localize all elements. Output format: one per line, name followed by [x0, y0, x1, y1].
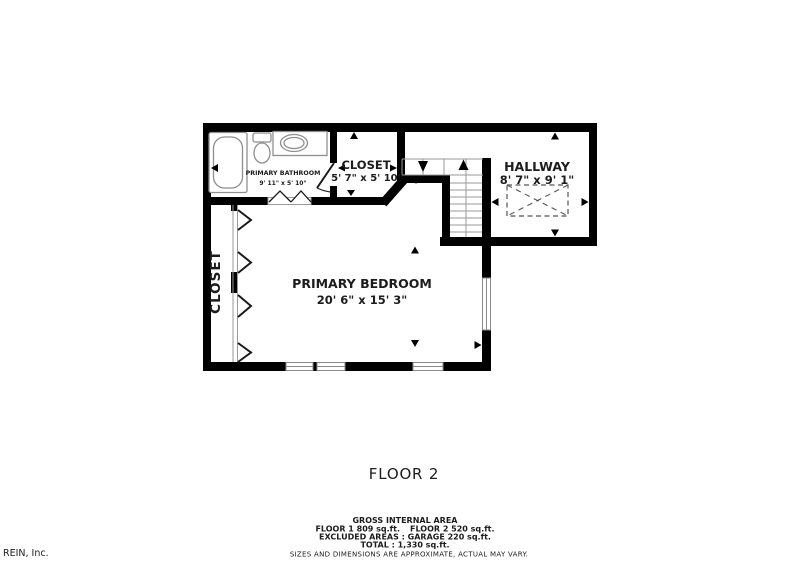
closet-upper-label: CLOSET [341, 158, 390, 172]
floor-title: FLOOR 2 [369, 465, 439, 483]
hallway-dims: 8' 7" x 9' 1" [500, 173, 574, 187]
toilet-icon [253, 133, 271, 163]
closet-left-label: CLOSET [208, 250, 224, 314]
floor-plan-page: PRIMARY BATHROOM 9' 11" x 5' 10" CLOSET … [0, 0, 800, 565]
primary-bathroom-label: PRIMARY BATHROOM [246, 170, 321, 177]
bathtub-icon [209, 133, 247, 193]
footer-disclaimer: SIZES AND DIMENSIONS ARE APPROXIMATE, AC… [290, 551, 528, 559]
rein-watermark: REIN, Inc. [3, 548, 49, 559]
hallway-label: HALLWAY [504, 159, 571, 174]
floor-plan-canvas: PRIMARY BATHROOM 9' 11" x 5' 10" CLOSET … [0, 0, 800, 565]
ceiling-break-dashed-box [507, 185, 568, 216]
footer-total-area: TOTAL : 1,330 sq.ft. [360, 541, 449, 550]
sink-vanity-icon [273, 132, 327, 156]
stair-direction-arrows [418, 160, 469, 173]
primary-bedroom-dims: 20' 6" x 15' 3" [317, 293, 407, 307]
primary-bedroom-label: PRIMARY BEDROOM [292, 276, 432, 291]
closet-upper-dims: 5' 7" x 5' 10" [331, 173, 403, 184]
windows [286, 278, 491, 371]
primary-bathroom-dims: 9' 11" x 5' 10" [259, 180, 306, 187]
bifold-doors-icon [268, 191, 311, 205]
